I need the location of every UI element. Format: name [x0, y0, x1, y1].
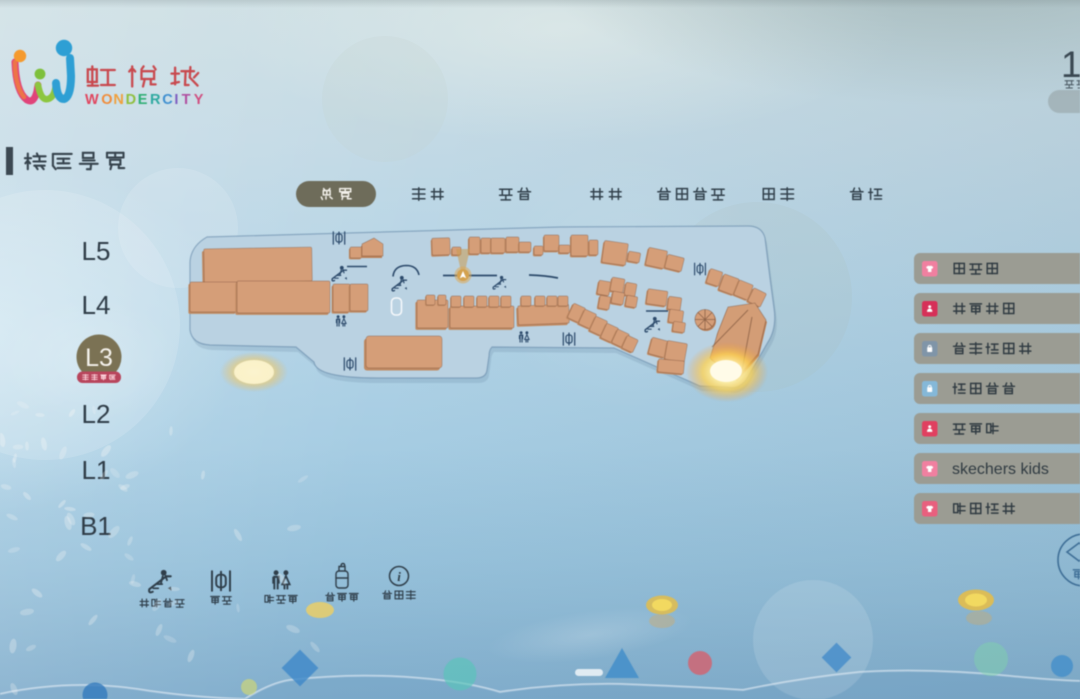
- svg-text:skechers kids: skechers kids: [952, 461, 1049, 478]
- svg-text:O: O: [101, 92, 112, 108]
- svg-text:I: I: [174, 92, 178, 108]
- svg-text:W: W: [85, 92, 99, 108]
- svg-text:N: N: [113, 92, 123, 108]
- svg-text:R: R: [150, 92, 161, 108]
- svg-text:T: T: [182, 92, 191, 108]
- svg-text:L2: L2: [82, 399, 111, 429]
- svg-text:L1: L1: [82, 455, 111, 485]
- svg-text:E: E: [138, 92, 148, 108]
- svg-text:L3: L3: [85, 344, 113, 372]
- svg-text:D: D: [126, 92, 136, 108]
- svg-text:i: i: [397, 569, 401, 584]
- svg-text:1: 1: [1061, 44, 1080, 85]
- svg-text:L4: L4: [82, 290, 111, 320]
- svg-text:L5: L5: [82, 236, 111, 266]
- svg-text:C: C: [162, 92, 173, 108]
- svg-text:Y: Y: [194, 92, 204, 108]
